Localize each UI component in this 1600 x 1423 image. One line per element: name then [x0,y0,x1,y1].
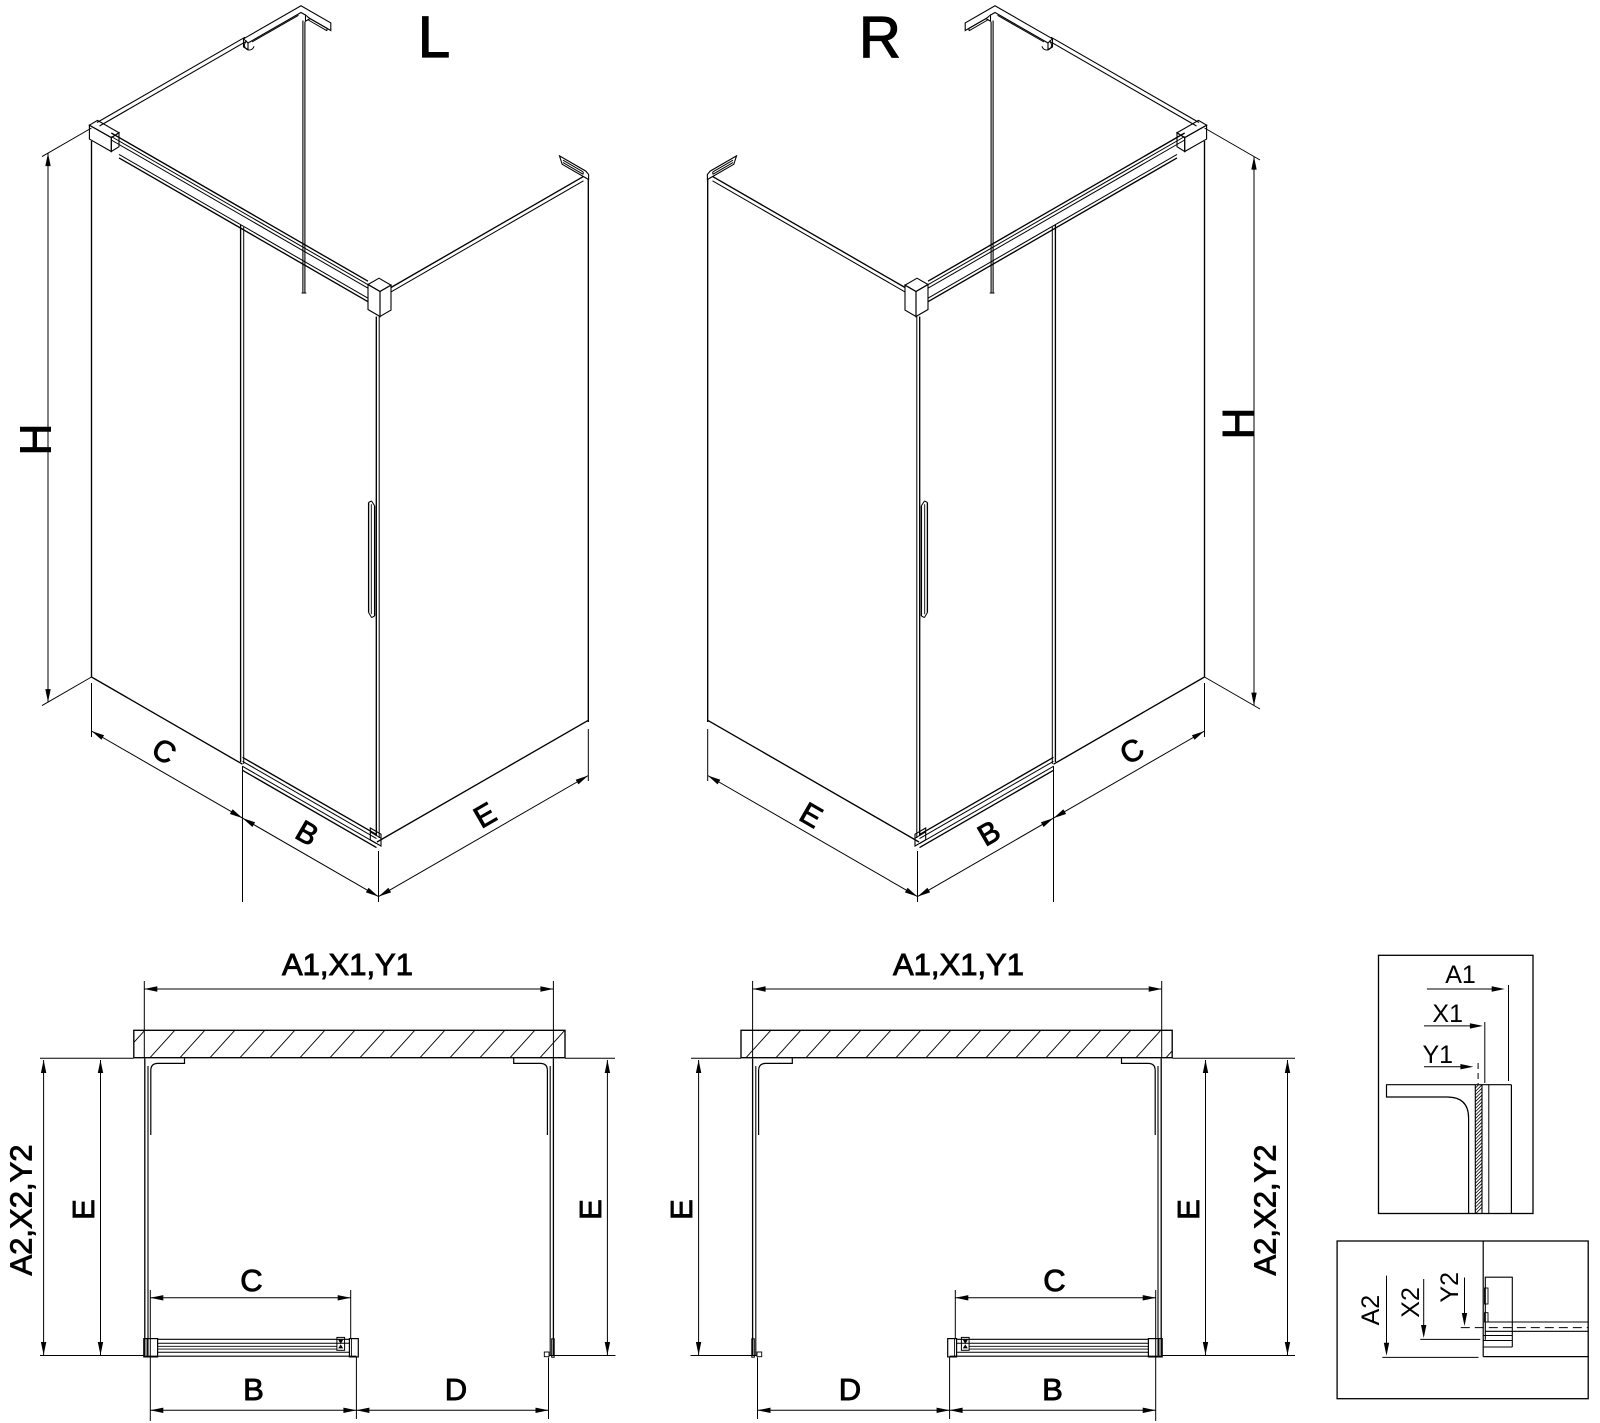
svg-text:A2: A2 [1357,1295,1385,1326]
svg-text:E: E [664,1199,699,1220]
svg-text:R: R [859,5,901,70]
svg-text:E: E [1171,1199,1206,1220]
svg-text:A1: A1 [1445,961,1476,989]
svg-text:Y1: Y1 [1423,1041,1454,1069]
svg-text:D: D [445,1372,467,1407]
svg-text:A1,X1,Y1: A1,X1,Y1 [893,947,1024,982]
svg-text:C: C [1043,1263,1065,1298]
svg-text:H: H [1214,408,1263,440]
svg-text:A2,X2,Y2: A2,X2,Y2 [4,1145,39,1276]
svg-text:C: C [240,1263,262,1298]
svg-text:E: E [66,1199,101,1220]
svg-text:X1: X1 [1432,1000,1463,1028]
svg-text:Y2: Y2 [1436,1272,1464,1303]
svg-text:X2: X2 [1397,1287,1425,1318]
svg-text:B: B [1042,1372,1063,1407]
svg-text:H: H [12,424,61,456]
svg-text:L: L [418,5,450,70]
svg-text:B: B [243,1372,264,1407]
svg-text:A1,X1,Y1: A1,X1,Y1 [282,947,413,982]
svg-text:E: E [573,1199,608,1220]
svg-text:D: D [839,1372,861,1407]
svg-text:A2,X2,Y2: A2,X2,Y2 [1248,1145,1283,1276]
